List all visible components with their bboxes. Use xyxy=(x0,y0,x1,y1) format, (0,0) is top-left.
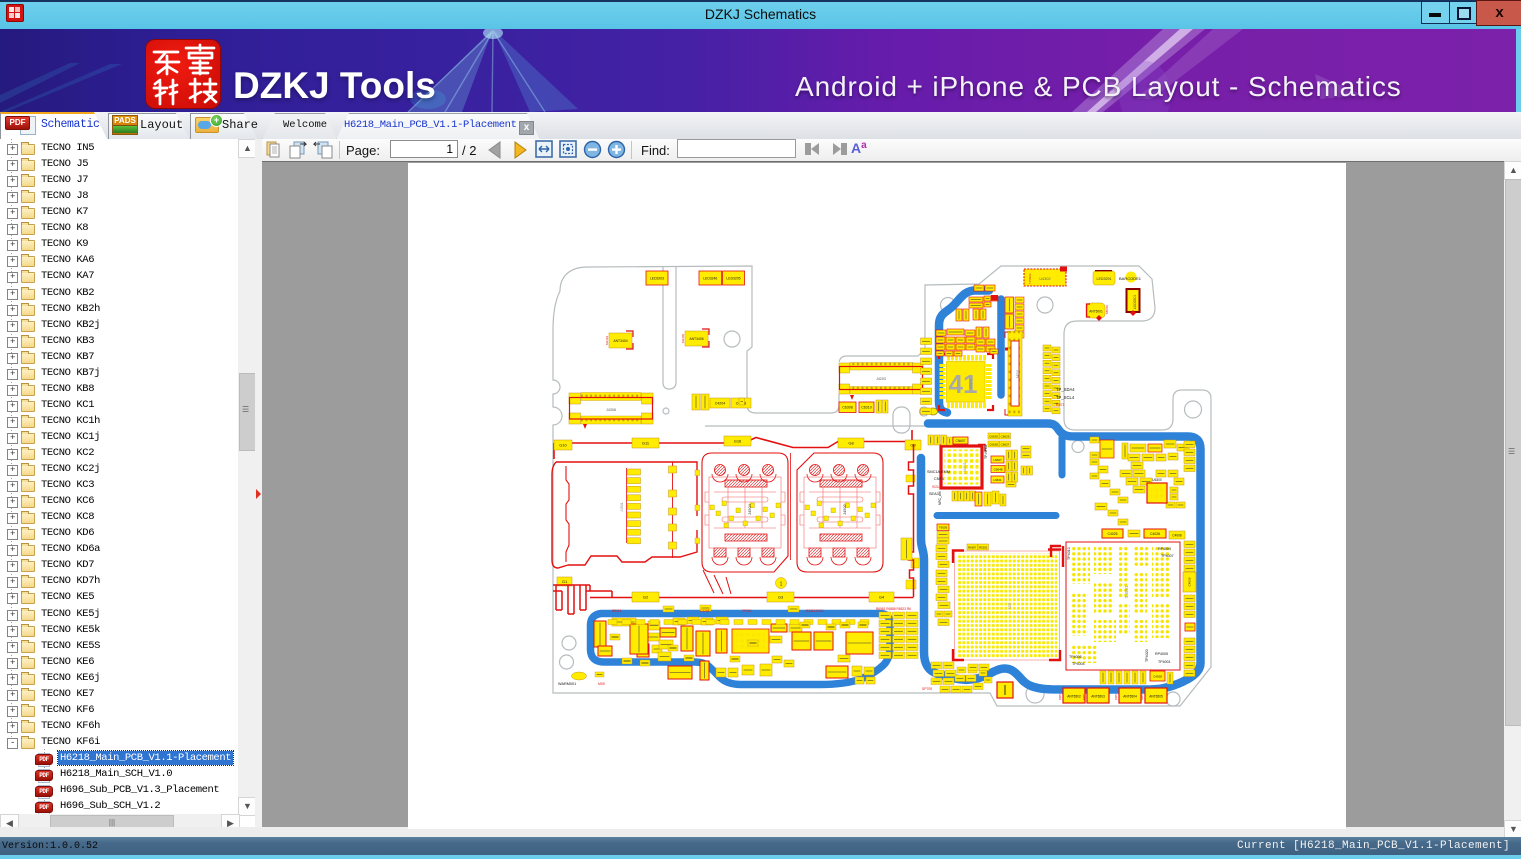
svg-text:ANT3404: ANT3404 xyxy=(613,339,627,343)
svg-text:G10: G10 xyxy=(559,442,567,447)
svg-text:G4: G4 xyxy=(879,594,885,599)
svg-text:M65: M65 xyxy=(1058,694,1062,700)
svg-text:RP4009: RP4009 xyxy=(1158,547,1171,551)
svg-text:ANT6502: ANT6502 xyxy=(1067,695,1081,699)
svg-text:J4308: J4308 xyxy=(606,408,616,412)
svg-text:NFC_ant: NFC_ant xyxy=(938,491,942,505)
svg-text:J4203: J4203 xyxy=(876,377,886,381)
svg-text:C6630: C6630 xyxy=(989,434,998,438)
svg-text:TP4006: TP4006 xyxy=(1069,655,1082,659)
svg-text:ANT6504: ANT6504 xyxy=(1123,695,1137,699)
svg-text:L6601: L6601 xyxy=(993,478,1002,482)
svg-text:SP700: SP700 xyxy=(922,687,932,691)
svg-text:TP4020: TP4020 xyxy=(1145,649,1149,662)
svg-text:ANT3406: ANT3406 xyxy=(689,337,703,341)
svg-text:L6607: L6607 xyxy=(993,458,1002,462)
svg-text:BARCODE1: BARCODE1 xyxy=(1119,276,1142,281)
svg-text:C4025: C4025 xyxy=(1108,532,1118,536)
svg-text:R6567: R6567 xyxy=(968,545,977,549)
svg-text:M5001: M5001 xyxy=(1105,304,1109,314)
svg-text:LDO3501: LDO3501 xyxy=(1133,295,1137,310)
svg-text:ANT5001: ANT5001 xyxy=(1089,310,1103,314)
svg-text:ANT6505: ANT6505 xyxy=(1149,695,1163,699)
svg-text:CNT4: CNT4 xyxy=(934,477,944,481)
svg-text:U5503: U5503 xyxy=(969,379,973,389)
svg-text:J4502: J4502 xyxy=(842,503,847,515)
svg-text:TP4001: TP4001 xyxy=(1158,660,1171,664)
svg-text:M3406: M3406 xyxy=(681,333,685,343)
svg-text:J4504: J4504 xyxy=(747,503,752,515)
svg-text:R2212 R221: R2212 R221 xyxy=(806,609,824,613)
svg-text:ANT6503: ANT6503 xyxy=(1091,695,1105,699)
svg-text:C6310: C6310 xyxy=(861,406,872,410)
svg-text:C6648: C6648 xyxy=(994,467,1003,471)
svg-text:S4001: S4001 xyxy=(1124,585,1129,599)
svg-text:M65: M65 xyxy=(1114,694,1118,700)
svg-text:C4029: C4029 xyxy=(1188,577,1192,586)
svg-text:U2: U2 xyxy=(1007,603,1012,609)
svg-text:TP-NFC2: TP-NFC2 xyxy=(984,445,988,459)
svg-text:J4201: J4201 xyxy=(1016,369,1020,378)
svg-text:M3404: M3404 xyxy=(605,335,609,345)
svg-text:TP_SDA4: TP_SDA4 xyxy=(1056,387,1075,392)
svg-text:41: 41 xyxy=(949,369,978,399)
svg-text:C3208: C3208 xyxy=(700,609,710,613)
svg-text:TP320: TP320 xyxy=(742,609,752,613)
svg-text:RP4005: RP4005 xyxy=(1155,652,1168,656)
svg-text:M65: M65 xyxy=(1082,694,1086,700)
svg-text:R6581 R6588 R6523 R6: R6581 R6588 R6523 R6 xyxy=(876,607,911,611)
svg-text:SMC1A.EMM: SMC1A.EMM xyxy=(927,470,950,474)
svg-text:M09: M09 xyxy=(598,682,605,686)
svg-text:C6629: C6629 xyxy=(1001,434,1010,438)
svg-text:LED3291: LED3291 xyxy=(1097,277,1112,281)
svg-text:U4302: U4302 xyxy=(1039,277,1050,281)
svg-text:C6627: C6627 xyxy=(1001,442,1010,446)
svg-text:TP_SCL4: TP_SCL4 xyxy=(1056,395,1075,400)
svg-text:C4028: C4028 xyxy=(1153,674,1162,678)
svg-text:G11: G11 xyxy=(642,440,650,445)
svg-text:G3: G3 xyxy=(778,594,784,599)
svg-text:G2: G2 xyxy=(643,594,649,599)
svg-text:G16: G16 xyxy=(734,438,742,443)
svg-text:R571: R571 xyxy=(1056,403,1065,407)
svg-text:G8: G8 xyxy=(848,440,854,445)
svg-text:T6505: T6505 xyxy=(939,526,948,530)
svg-text:C6628: C6628 xyxy=(989,442,998,446)
svg-text:LED3203: LED3203 xyxy=(650,276,664,280)
svg-text:CN607: CN607 xyxy=(956,439,966,443)
svg-text:TP4013: TP4013 xyxy=(1067,547,1071,560)
svg-text:LED3246: LED3246 xyxy=(703,276,717,280)
svg-text:C4204: C4204 xyxy=(715,401,726,405)
svg-text:C4008: C4008 xyxy=(1172,533,1182,537)
svg-text:G1: G1 xyxy=(562,579,568,584)
svg-text:U4501: U4501 xyxy=(962,461,967,474)
svg-text:R5202: R5202 xyxy=(979,545,988,549)
svg-text:TP4004: TP4004 xyxy=(1072,662,1085,666)
svg-text:TP4007: TP4007 xyxy=(1161,554,1174,558)
svg-text:TP4502: TP4502 xyxy=(1028,273,1032,284)
svg-text:M65: M65 xyxy=(1140,694,1144,700)
svg-text:J4501: J4501 xyxy=(620,502,624,512)
svg-text:C6308: C6308 xyxy=(842,406,853,410)
svg-text:LED3205: LED3205 xyxy=(726,276,740,280)
svg-text:C4026: C4026 xyxy=(1150,532,1160,536)
svg-text:SOL2: SOL2 xyxy=(932,485,942,489)
svg-text:R8213: R8213 xyxy=(612,609,622,613)
svg-text:1: 1 xyxy=(780,582,783,588)
svg-text:WARM001: WARM001 xyxy=(558,682,576,686)
svg-text:U6300: U6300 xyxy=(1152,478,1162,482)
